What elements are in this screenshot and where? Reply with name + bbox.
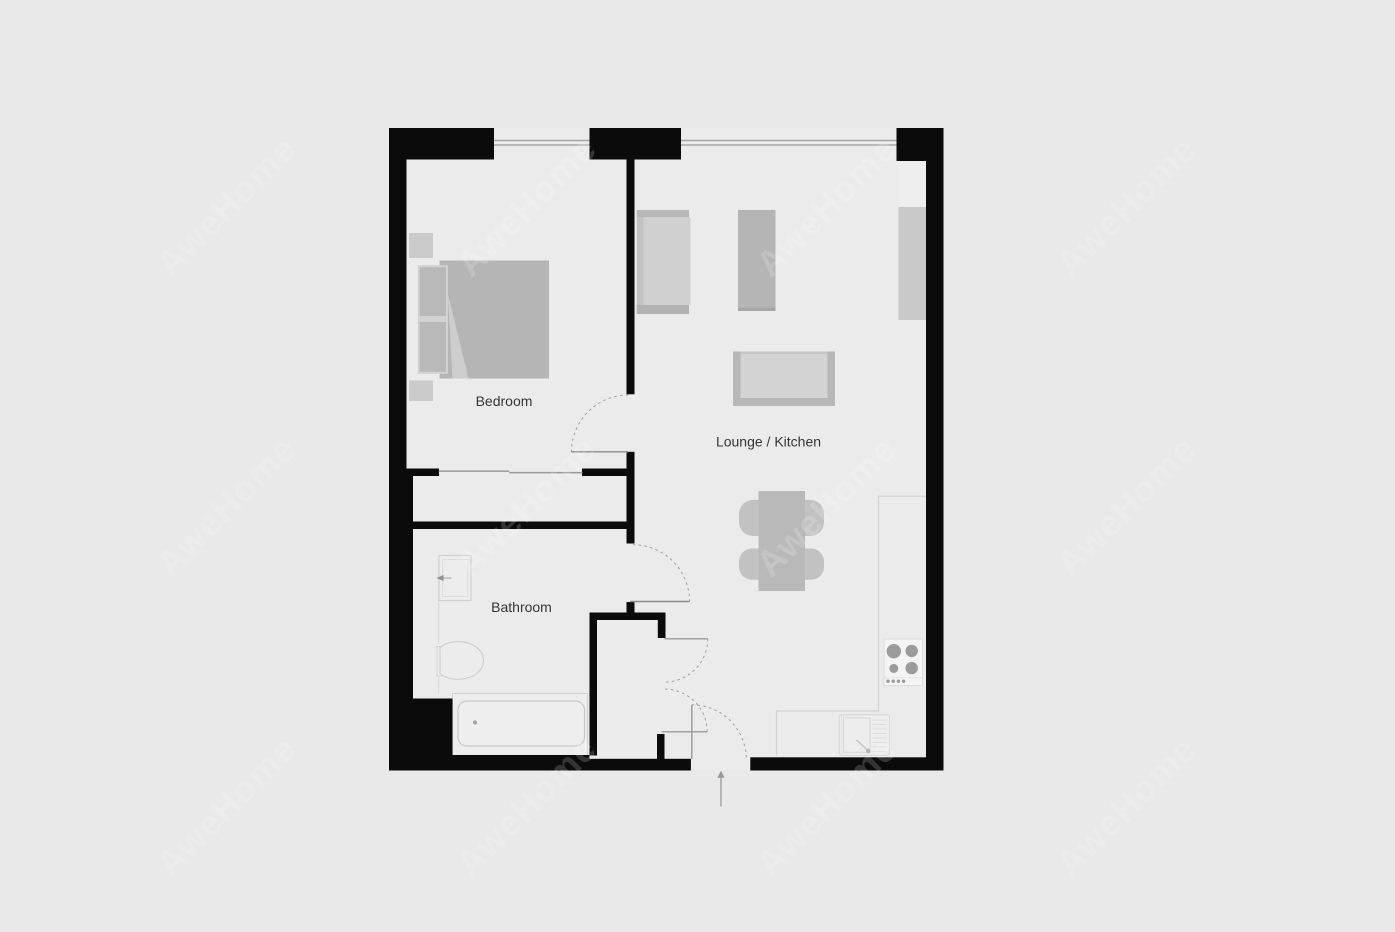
svg-text:Lounge / Kitchen: Lounge / Kitchen — [716, 433, 821, 449]
svg-text:Bathroom: Bathroom — [491, 599, 552, 615]
svg-text:Bedroom: Bedroom — [476, 393, 533, 409]
